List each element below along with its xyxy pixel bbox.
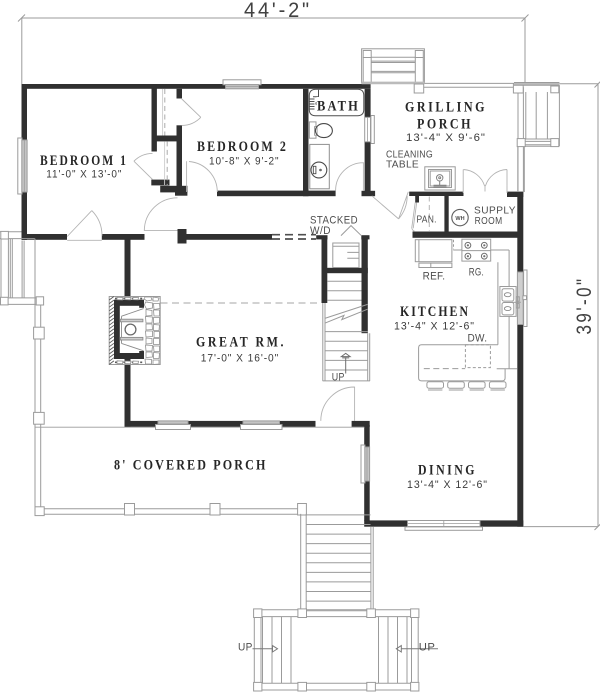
svg-text:44'-2": 44'-2": [244, 0, 312, 22]
svg-text:SUPPLY: SUPPLY: [474, 206, 516, 217]
svg-text:REF.: REF.: [423, 271, 446, 283]
svg-text:GRILLING: GRILLING: [405, 100, 487, 116]
svg-text:13'-4" X 12'-6": 13'-4" X 12'-6": [407, 479, 488, 491]
svg-text:PORCH: PORCH: [417, 117, 473, 133]
svg-text:13'-4" X 12'-6": 13'-4" X 12'-6": [394, 321, 475, 333]
svg-text:WH: WH: [455, 216, 464, 222]
svg-text:10'-8" X 9'-2": 10'-8" X 9'-2": [209, 156, 280, 168]
svg-text:13'-4" X 9'-6": 13'-4" X 9'-6": [406, 132, 486, 144]
svg-text:17'-0" X 16'-0": 17'-0" X 16'-0": [201, 353, 279, 365]
svg-text:BATH: BATH: [317, 99, 360, 115]
svg-text:RG.: RG.: [469, 267, 484, 279]
svg-text:8' COVERED PORCH: 8' COVERED PORCH: [114, 458, 268, 474]
svg-text:UP: UP: [332, 372, 345, 384]
svg-text:DINING: DINING: [418, 463, 477, 479]
svg-text:39'-0": 39'-0": [573, 277, 596, 335]
svg-text:UP: UP: [419, 642, 436, 654]
svg-text:W/D: W/D: [310, 225, 331, 237]
svg-text:UP: UP: [238, 642, 253, 654]
svg-text:TABLE: TABLE: [386, 160, 419, 171]
svg-text:DW.: DW.: [468, 333, 488, 345]
svg-text:ROOM: ROOM: [475, 216, 503, 227]
svg-text:KITCHEN: KITCHEN: [400, 304, 470, 320]
svg-text:PAN.: PAN.: [417, 215, 437, 226]
svg-text:BEDROOM 1: BEDROOM 1: [40, 153, 128, 169]
svg-text:BEDROOM 2: BEDROOM 2: [197, 139, 288, 155]
svg-text:11'-0" X 13'-0": 11'-0" X 13'-0": [46, 169, 122, 181]
svg-text:GREAT RM.: GREAT RM.: [196, 335, 286, 351]
